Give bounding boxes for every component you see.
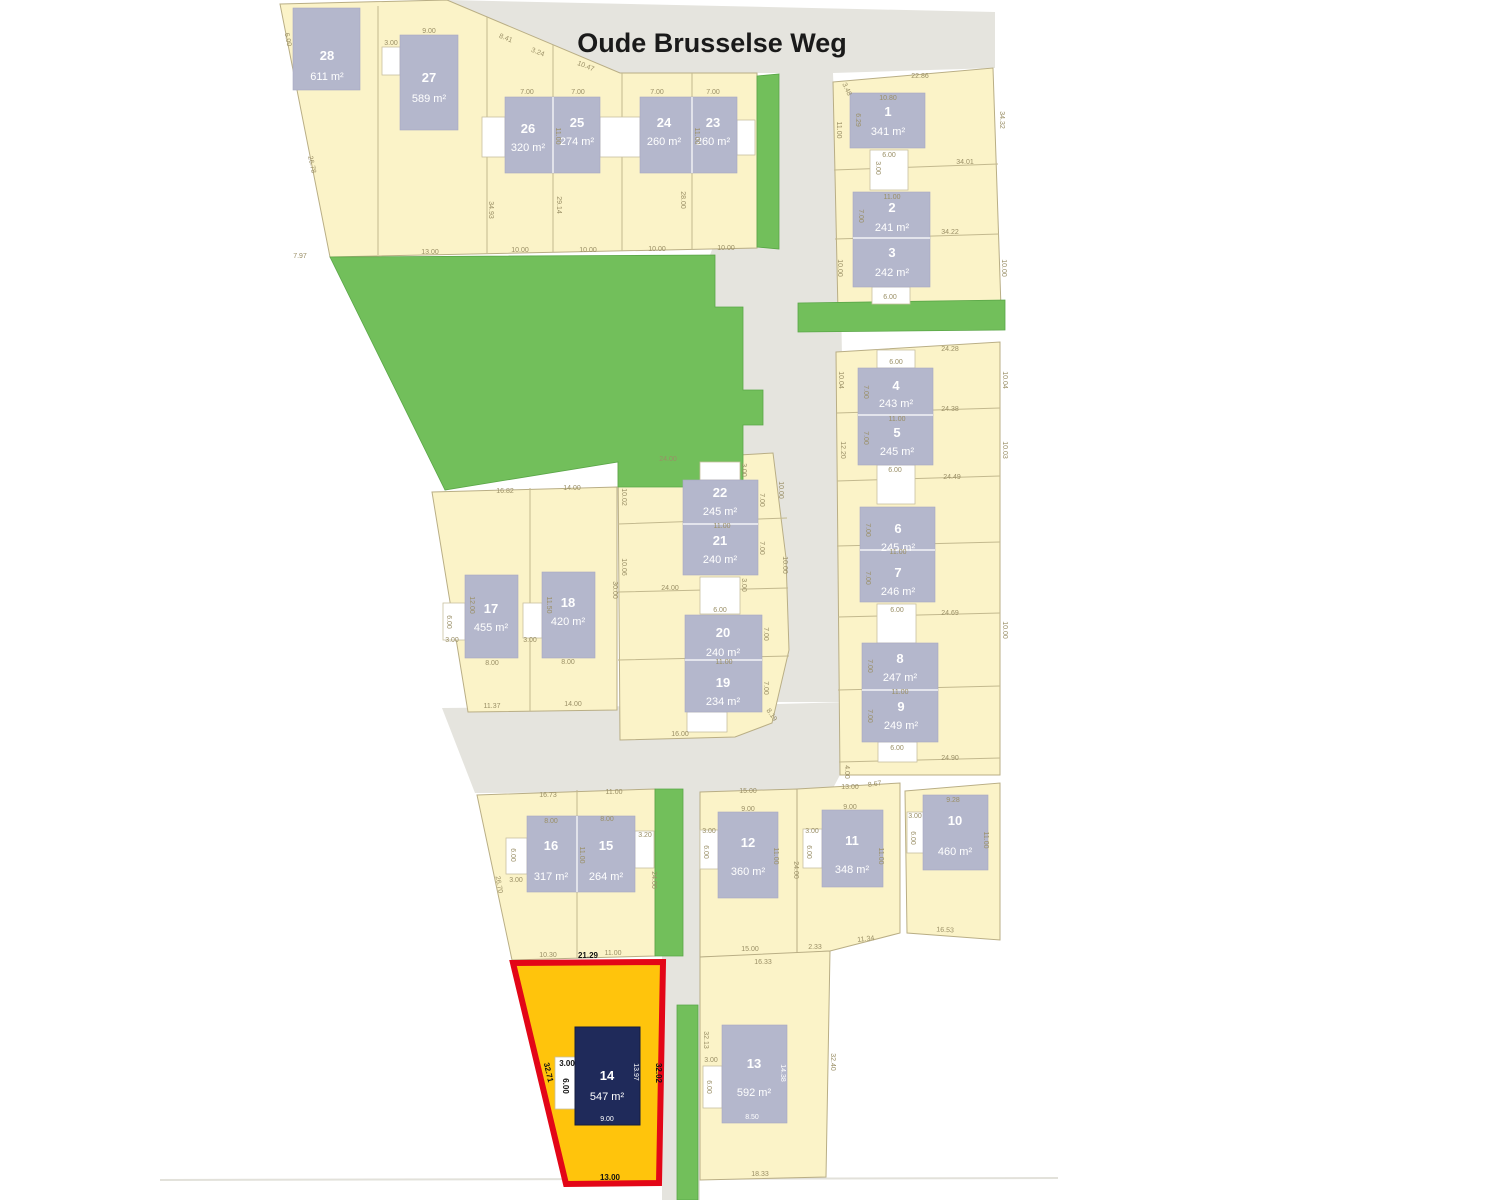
dim: 13.00: [421, 249, 439, 256]
dim: 11.00: [835, 122, 842, 139]
dim: 3.00: [702, 828, 716, 835]
dim: 10.04: [837, 371, 844, 389]
green-strip-mid-south: [655, 789, 683, 956]
dim: 14.00: [564, 701, 582, 708]
dim: 7.00: [864, 523, 871, 537]
dim: 3.00: [805, 828, 819, 835]
plot-4-number: 4: [892, 378, 900, 393]
plot-4-area: 243 m²: [879, 398, 914, 410]
dim: 10.00: [1001, 621, 1008, 639]
dim: 24.38: [941, 406, 959, 413]
dim: 9.28: [946, 797, 960, 804]
plot-27-number: 27: [422, 70, 436, 85]
dim: 15.00: [741, 946, 759, 953]
building-12: [718, 812, 778, 898]
dim: 6.00: [283, 32, 293, 47]
green-strip-north-east: [798, 300, 1005, 332]
plot-19-area: 234 m²: [706, 696, 741, 708]
dim: 11.00: [884, 194, 901, 201]
dim: 7.97: [293, 253, 307, 260]
dim: 3.20: [638, 832, 652, 839]
plot-6-number: 6: [894, 521, 901, 536]
dim: 11.00: [605, 950, 622, 957]
plot-22-area: 245 m²: [703, 506, 738, 518]
dim-14-top: 21.29: [578, 951, 599, 960]
dim: 3.00: [740, 578, 747, 592]
plot-9-area: 249 m²: [884, 720, 919, 732]
dim: 6.00: [509, 848, 516, 862]
plot-24-number: 24: [657, 115, 672, 130]
dim: 10.02: [620, 488, 627, 506]
garage-26: [482, 117, 505, 157]
dim: 3.00: [384, 40, 398, 47]
dim: 11.00: [877, 848, 884, 865]
plot-22-number: 22: [713, 485, 727, 500]
plot-5-area: 245 m²: [880, 446, 915, 458]
building-18: [542, 572, 595, 658]
plot-21-area: 240 m²: [703, 554, 738, 566]
dim: 11.00: [982, 832, 989, 849]
dim: 24.90: [941, 755, 959, 762]
dim: 3.00: [445, 637, 459, 644]
plot-21-number: 21: [713, 533, 727, 548]
dim-14-garage-depth: 6.00: [561, 1078, 570, 1094]
plot-15-number: 15: [599, 838, 613, 853]
plot-13-number: 13: [747, 1056, 761, 1071]
dim: 24.28: [941, 346, 959, 353]
dim: 10.00: [1000, 259, 1007, 277]
plot-16-area: 317 m²: [534, 871, 569, 883]
plot-10-area: 460 m²: [938, 846, 973, 858]
plot-12-number: 12: [741, 835, 755, 850]
dim: 18.33: [751, 1171, 769, 1178]
dim: 32.40: [829, 1053, 836, 1071]
dim: 6.00: [705, 1080, 712, 1094]
dim: 3.00: [509, 877, 523, 884]
dim: 3.00: [740, 463, 747, 477]
dim: 16.82: [496, 488, 514, 495]
dim: 6.00: [713, 607, 727, 614]
dim: 22.86: [911, 73, 929, 80]
building-13: [722, 1025, 787, 1123]
dim: 6.00: [702, 845, 709, 859]
garage-27: [382, 47, 400, 75]
plot-7-area: 246 m²: [881, 586, 916, 598]
dim: 7.00: [650, 89, 664, 96]
dim: 24.00: [650, 871, 657, 889]
plot-25-area: 274 m²: [560, 136, 595, 148]
green-strip-road-top: [757, 74, 779, 249]
garage-18: [523, 603, 542, 638]
dim: 8.00: [485, 660, 499, 667]
dim: 7.00: [762, 627, 769, 641]
dim: 16.33: [754, 959, 772, 966]
dim: 10.04: [1001, 371, 1008, 389]
dim: 11.00: [889, 416, 906, 423]
plot-14-number: 14: [600, 1068, 615, 1083]
garage-22: [700, 462, 740, 480]
plot-1-number: 1: [884, 104, 891, 119]
garage-25-24: [600, 117, 640, 157]
dim: 10.00: [836, 259, 843, 277]
dim: 8.00: [561, 659, 575, 666]
green-area-main: [330, 255, 763, 490]
dim: 4.00: [843, 765, 850, 779]
dim: 6.29: [854, 113, 861, 127]
dim: 12.20: [839, 441, 846, 459]
plot-28-area: 611 m²: [310, 71, 344, 83]
plot-15-area: 264 m²: [589, 871, 624, 883]
plot-12-area: 360 m²: [731, 866, 766, 878]
dim: 6.00: [805, 845, 812, 859]
dim: 6.00: [445, 615, 452, 629]
plot-8-area: 247 m²: [883, 672, 918, 684]
dim: 7.00: [866, 709, 873, 723]
dim: 7.00: [864, 571, 871, 585]
dim: 11.00: [716, 659, 733, 666]
site-plan: Oude Brusselse Weg 28 611 m² 27 589 m² 2…: [0, 0, 1500, 1200]
plot-23-number: 23: [706, 115, 720, 130]
dim: 14.38: [779, 1064, 786, 1082]
dim: 11.00: [606, 789, 623, 796]
dim: 9.00: [741, 806, 755, 813]
plot-23-area: 260 m²: [696, 136, 731, 148]
plot-19-number: 19: [716, 675, 730, 690]
dim: 10.80: [879, 95, 897, 102]
dim: 34.32: [998, 111, 1005, 129]
dim: 3.00: [908, 813, 922, 820]
dim-14-right: 32.02: [654, 1063, 663, 1084]
highlighted-plot-14: 14 547 m² 21.29 32.71 32.02 13.00 3.00 6…: [513, 951, 663, 1184]
dim: 6.00: [888, 467, 902, 474]
dim: 10.03: [1001, 441, 1008, 459]
dim-14-bottom: 13.00: [600, 1173, 621, 1182]
plot-27-area: 589 m²: [412, 93, 447, 105]
dim: 9.00: [422, 28, 436, 35]
dim: 6.00: [883, 294, 897, 301]
plot-11-area: 348 m²: [835, 864, 870, 876]
dim: 8.00: [600, 816, 614, 823]
dim: 24.49: [943, 474, 961, 481]
dim: 10.00: [717, 245, 735, 252]
plot-17-area: 455 m²: [474, 622, 509, 634]
site-plan-canvas: Oude Brusselse Weg 28 611 m² 27 589 m² 2…: [0, 0, 1500, 1200]
plot-2-area: 241 m²: [875, 222, 910, 234]
plot-14-area: 547 m²: [590, 1091, 625, 1103]
plot-20-area: 240 m²: [706, 647, 741, 659]
plot-18-number: 18: [561, 595, 575, 610]
dim: 7.00: [762, 681, 769, 695]
plot-8-number: 8: [896, 651, 903, 666]
plot-20-number: 20: [716, 625, 730, 640]
dim: 30.00: [611, 581, 618, 599]
dim: 10.00: [511, 247, 529, 254]
dim: 24.00: [659, 456, 677, 463]
dim: 24.00: [661, 585, 679, 592]
dim: 11.00: [693, 128, 700, 145]
dim: 11.37: [484, 703, 501, 710]
dim: 7.00: [758, 493, 765, 507]
building-10: [923, 795, 988, 870]
building-17: [465, 575, 518, 658]
dim: 8.00: [544, 818, 558, 825]
dim: 14.00: [563, 485, 581, 492]
dim: 7.00: [862, 431, 869, 445]
plot-11-number: 11: [845, 833, 859, 848]
plot-1-area: 341 m²: [871, 126, 906, 138]
plot-10-number: 10: [948, 813, 962, 828]
dim: 7.00: [857, 209, 864, 223]
dim: 15.00: [739, 788, 757, 795]
plot-28-number: 28: [320, 48, 334, 63]
dim: 24.69: [941, 610, 959, 617]
plot-18-area: 420 m²: [551, 616, 586, 628]
dim: 6.00: [890, 607, 904, 614]
dim: 28.00: [679, 191, 686, 209]
dim: 6.00: [889, 359, 903, 366]
dim-14-house-depth: 13.97: [632, 1063, 639, 1081]
plot-7-number: 7: [894, 565, 901, 580]
plot-9-number: 9: [897, 699, 904, 714]
garage-19: [687, 712, 727, 732]
building-24-23: [640, 97, 737, 173]
dim: 8.50: [745, 1114, 759, 1121]
dim: 6.00: [890, 745, 904, 752]
dim: 7.00: [706, 89, 720, 96]
plot-2-number: 2: [888, 200, 895, 215]
dim: 16.00: [671, 731, 689, 738]
plot-3-area: 242 m²: [875, 267, 910, 279]
dim: 3.00: [704, 1057, 718, 1064]
dim: 11.00: [890, 549, 907, 556]
dim: 24.00: [792, 861, 799, 879]
plot-24-area: 260 m²: [647, 136, 682, 148]
dim: 7.00: [866, 659, 873, 673]
plot-17-number: 17: [484, 601, 498, 616]
dim: 6.00: [909, 831, 916, 845]
dim: 10.06: [620, 558, 627, 576]
plot-26-area: 320 m²: [511, 142, 546, 154]
plot-3-number: 3: [888, 245, 895, 260]
green-strip-south: [677, 1005, 698, 1200]
dim: 34.22: [941, 229, 959, 236]
dim: 9.00: [843, 804, 857, 811]
dim: 7.00: [758, 541, 765, 555]
dim: 11.00: [714, 523, 731, 530]
dim: 16.53: [936, 927, 954, 935]
dim: 3.00: [523, 637, 537, 644]
dim: 10.00: [781, 556, 788, 574]
dim: 34.93: [487, 201, 494, 219]
dim: 11.00: [772, 848, 779, 865]
dim: 10.30: [539, 952, 557, 959]
dim: 7.00: [862, 385, 869, 399]
plot-13-area: 592 m²: [737, 1087, 772, 1099]
dim: 32.13: [702, 1031, 709, 1049]
dim: 11.50: [545, 597, 552, 614]
plot-16-number: 16: [544, 838, 558, 853]
dim: 11.00: [892, 689, 909, 696]
dim: 13.00: [841, 784, 859, 791]
dim: 10.00: [579, 247, 597, 254]
dim: 6.00: [882, 152, 896, 159]
dim: 11.00: [554, 128, 561, 145]
dim-14-house-width: 9.00: [600, 1116, 614, 1123]
plot-25-number: 25: [570, 115, 584, 130]
dim: 10.00: [777, 481, 784, 499]
street-name-label: Oude Brusselse Weg: [577, 28, 847, 58]
dim: 16.73: [539, 792, 557, 799]
dim-14-garage-width: 3.00: [559, 1059, 575, 1068]
dim: 11.34: [857, 935, 875, 944]
garage-23: [737, 120, 755, 155]
dim: 29.14: [555, 196, 562, 214]
dim: 7.00: [520, 89, 534, 96]
dim: 11.00: [578, 847, 585, 864]
plot-26-number: 26: [521, 121, 535, 136]
dim: 12.00: [468, 596, 475, 614]
dim: 3.00: [874, 161, 881, 175]
dim: 2.33: [808, 944, 822, 951]
plot-5-number: 5: [893, 425, 900, 440]
dim: 10.00: [648, 246, 666, 253]
dim: 7.00: [571, 89, 585, 96]
dim: 34.01: [956, 159, 974, 166]
